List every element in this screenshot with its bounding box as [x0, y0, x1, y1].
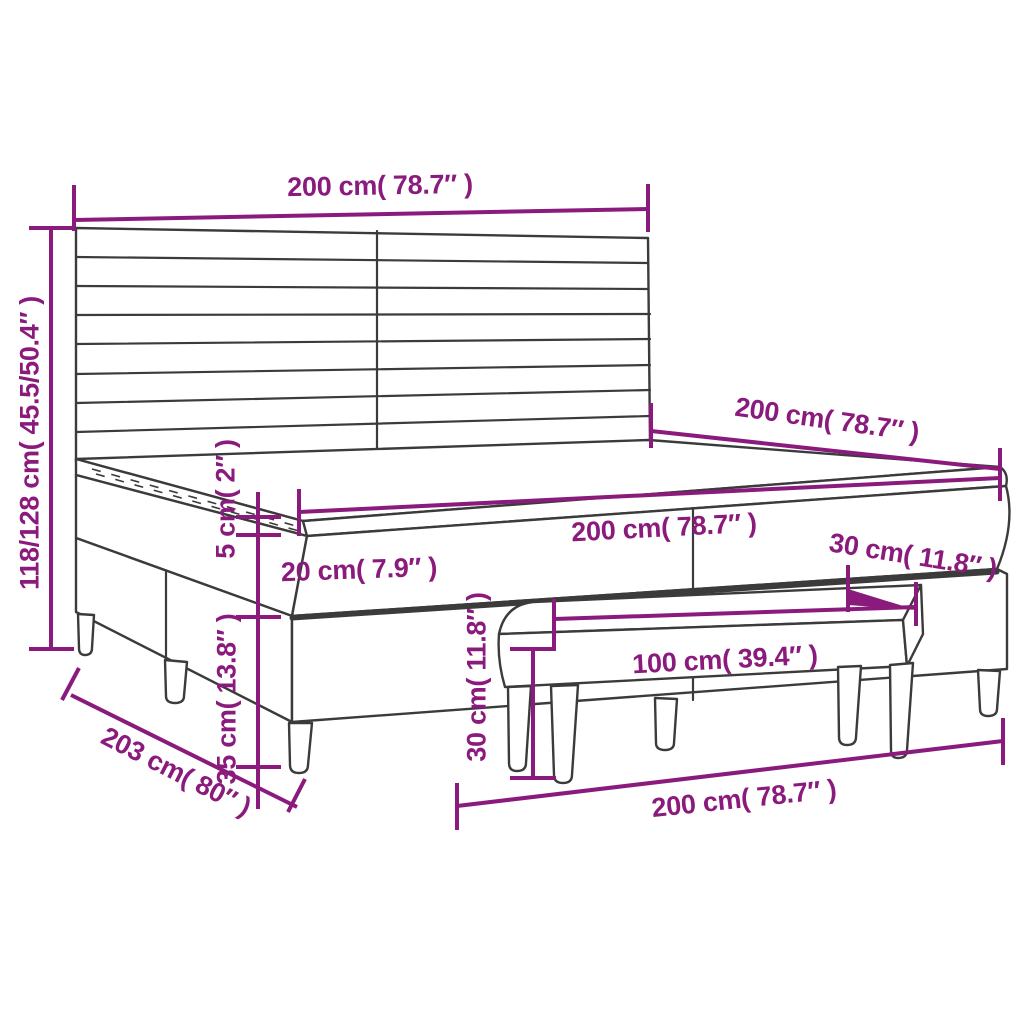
bench-leg [551, 685, 578, 783]
mattress-height-label: 20 cm( 7.9″ ) [280, 552, 437, 588]
dimension-tick [62, 668, 79, 700]
bed-leg [655, 698, 677, 750]
dimension-line [74, 209, 648, 220]
bed-line-art [0, 0, 1024, 1024]
bed-leg [978, 670, 1000, 716]
leg-height-label: 35 cm( 13.8″ ) [212, 614, 243, 785]
bed-leg [289, 723, 312, 773]
bench-leg [890, 663, 913, 758]
topper-height-label: 5 cm( 2″ ) [211, 439, 242, 558]
bench-height-label: 30 cm( 11.8″ ) [462, 592, 493, 761]
bench-leg [838, 666, 861, 745]
headboard [76, 228, 650, 461]
headboard-slat-line [76, 314, 650, 315]
overall-height-label: 118/128 cm( 45.5/50.4″ ) [15, 296, 46, 590]
bed-leg [165, 660, 187, 703]
headboard-width-label: 200 cm( 78.7″ ) [287, 169, 473, 203]
bed-leg [78, 614, 94, 655]
diagram-canvas: 200 cm( 78.7″ ) 118/128 cm( 45.5/50.4″ )… [0, 0, 1024, 1024]
bench-leg [508, 686, 531, 771]
